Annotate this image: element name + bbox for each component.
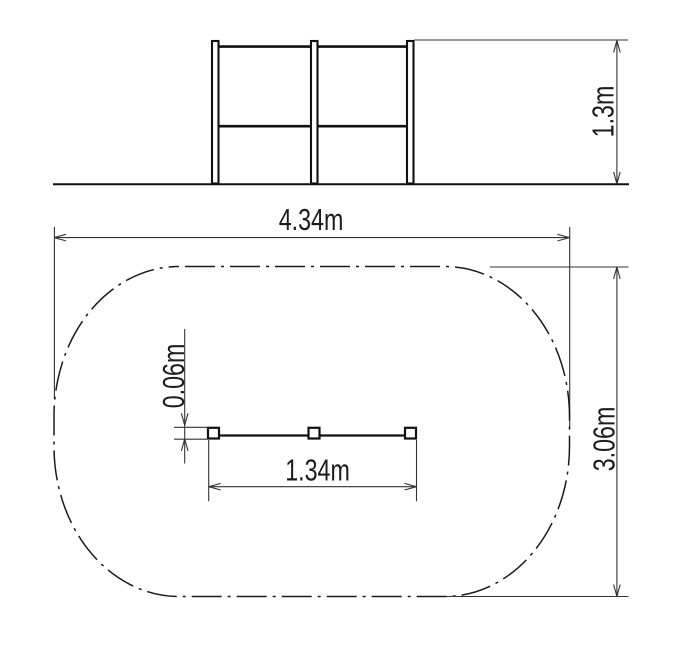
svg-text:4.34m: 4.34m (279, 202, 344, 237)
svg-text:0.06m: 0.06m (156, 344, 191, 409)
svg-text:1.34m: 1.34m (285, 452, 350, 487)
svg-text:3.06m: 3.06m (586, 407, 621, 472)
svg-text:1.3m: 1.3m (585, 86, 620, 138)
